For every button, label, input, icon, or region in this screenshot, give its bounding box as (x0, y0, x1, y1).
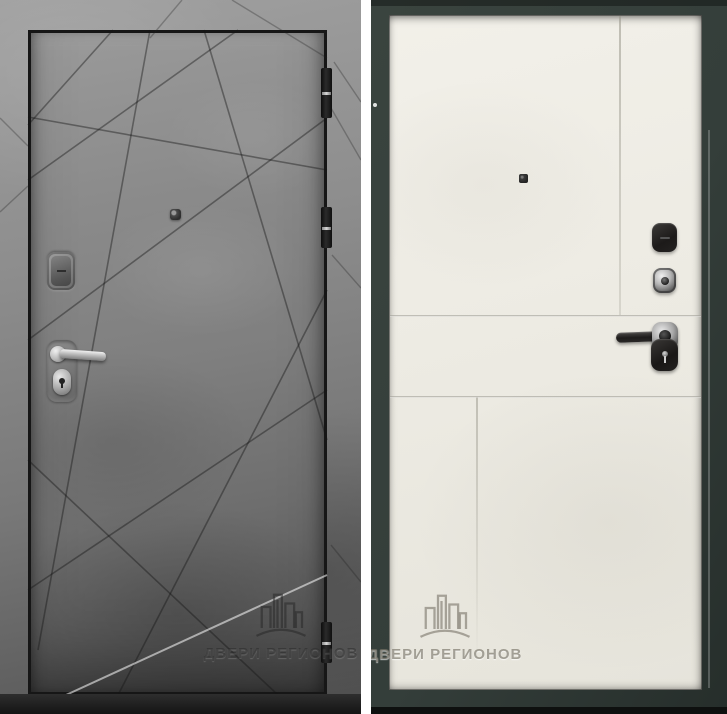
panel-groove (390, 315, 701, 317)
panel-seam (619, 16, 621, 315)
photo-divider (361, 0, 371, 714)
floor-shadow (0, 694, 361, 714)
door-interior-panel: ДВЕРИ РЕГИОНОВ (371, 0, 727, 714)
hinge-pin (322, 227, 331, 230)
lock-escutcheon-top (47, 252, 75, 290)
night-lock (651, 339, 678, 371)
keyhole-stem (664, 356, 666, 363)
panel-seam (476, 397, 478, 661)
cylinder-lock (53, 369, 71, 395)
door-exterior-panel: ДВЕРИ РЕГИОНОВ (0, 0, 361, 714)
peephole (170, 209, 181, 220)
keyhole-stem (61, 381, 63, 388)
thumb-turn-slot (660, 237, 670, 239)
keyhole (661, 277, 669, 285)
lever-handle (50, 346, 66, 362)
door-product-photo: ДВЕРИ РЕГИОНОВ (0, 0, 727, 714)
chrome-keyhole-escutcheon (653, 268, 676, 293)
thumb-turn-knob (652, 223, 677, 252)
hinge-bottom (321, 622, 332, 663)
panel-groove (390, 396, 701, 398)
frame-shadow (371, 0, 727, 6)
keyhole-slot (57, 270, 66, 272)
hinge-pin (322, 92, 331, 95)
hinge-top (321, 68, 332, 118)
frame-reflection-speck (373, 103, 377, 107)
hinge-middle (321, 207, 332, 248)
floor-shadow (371, 707, 727, 714)
hinge-pin (322, 642, 331, 645)
peephole (519, 174, 528, 183)
frame-edge-highlight (708, 130, 710, 688)
